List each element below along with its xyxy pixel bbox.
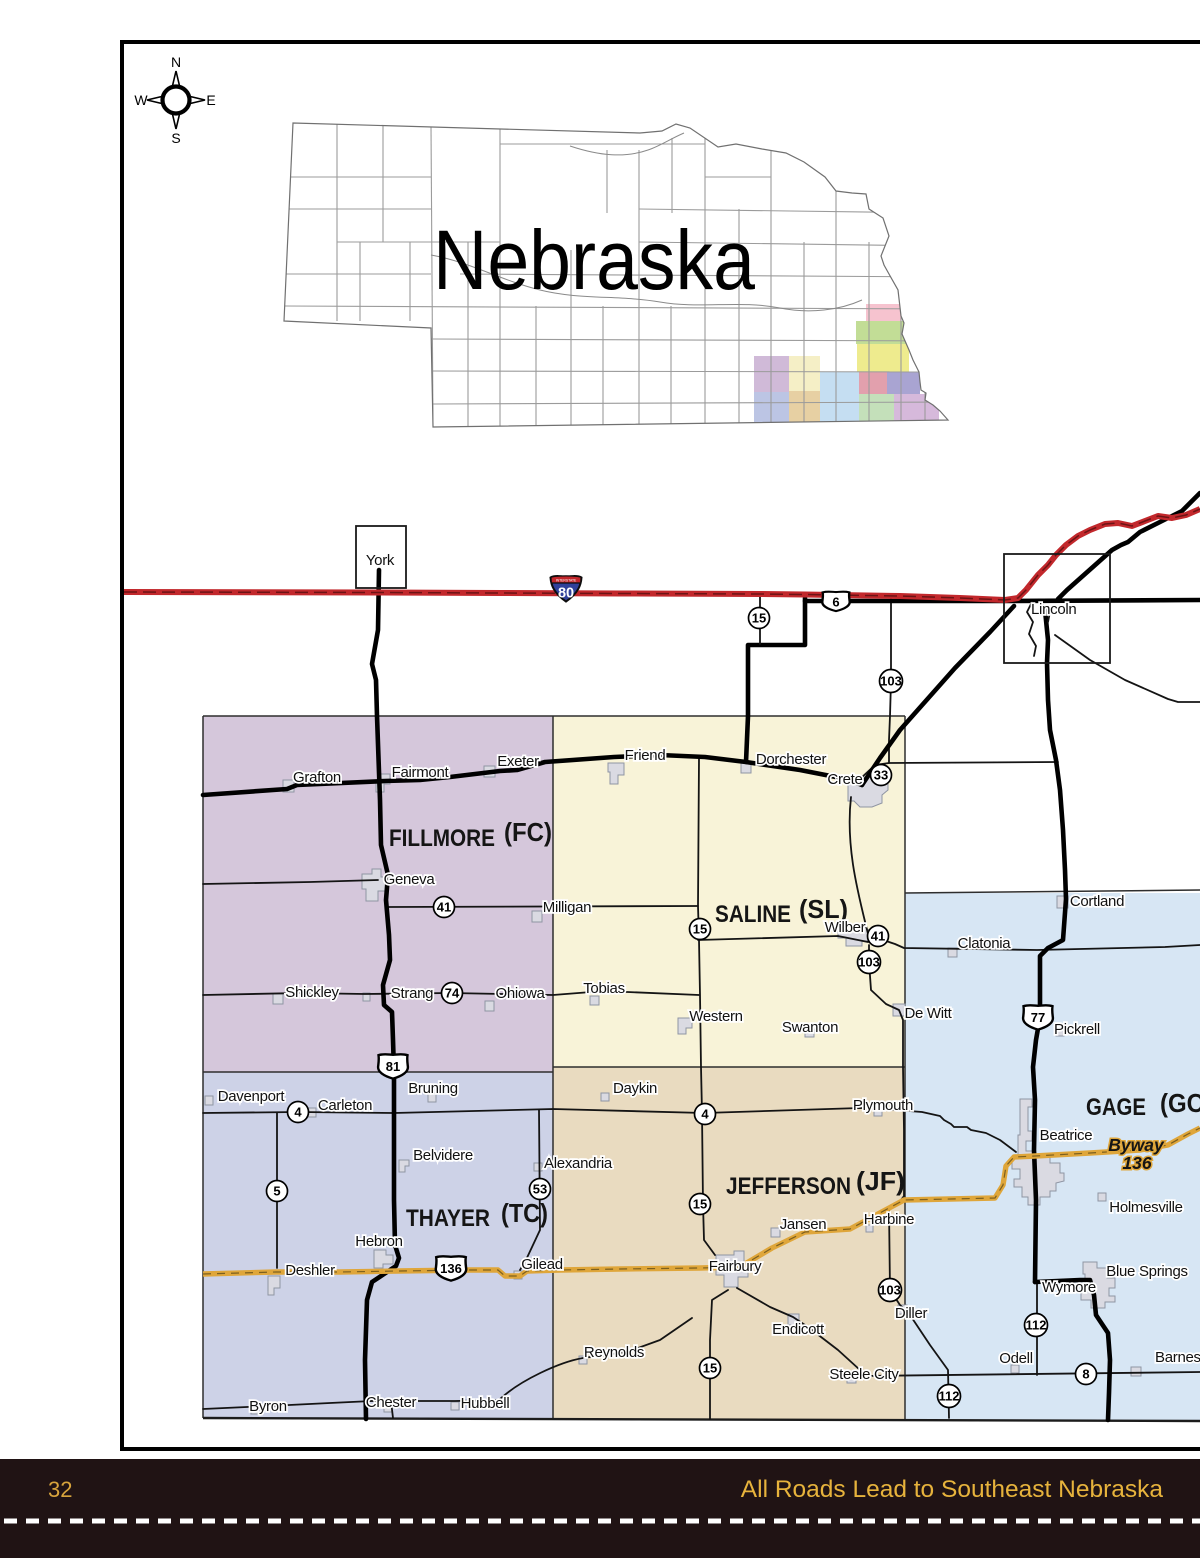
svg-text:SALINE: SALINE [715,901,791,928]
svg-text:Plymouth: Plymouth [853,1097,913,1114]
svg-text:Wilber: Wilber [825,919,866,936]
svg-text:Strang: Strang [391,985,433,1002]
svg-text:THAYER: THAYER [406,1205,490,1232]
svg-text:All Roads Lead to Southeast Ne: All Roads Lead to Southeast Nebraska [741,1476,1164,1503]
svg-text:103: 103 [858,955,880,970]
svg-text:136: 136 [1122,1153,1151,1173]
svg-text:Davenport: Davenport [218,1088,286,1105]
svg-text:15: 15 [693,1197,707,1212]
svg-text:(FC): (FC) [504,817,552,847]
svg-text:103: 103 [879,1283,901,1298]
svg-text:Shickley: Shickley [285,984,339,1001]
svg-text:Hebron: Hebron [355,1233,402,1250]
svg-text:Bruning: Bruning [408,1080,458,1097]
svg-text:Jansen: Jansen [780,1216,827,1233]
svg-text:Crete: Crete [827,771,862,788]
svg-text:Swanton: Swanton [782,1019,838,1036]
svg-text:Harbine: Harbine [864,1211,914,1228]
svg-text:Fairbury: Fairbury [709,1258,762,1275]
svg-text:Cortland: Cortland [1070,893,1124,910]
svg-text:Grafton: Grafton [293,769,341,786]
svg-text:Western: Western [689,1008,742,1025]
svg-text:FILLMORE: FILLMORE [389,825,495,852]
svg-text:Gilead: Gilead [521,1256,563,1273]
svg-text:Endicott: Endicott [772,1321,825,1338]
svg-text:Fairmont: Fairmont [392,764,450,781]
svg-text:Byron: Byron [249,1398,287,1415]
svg-text:Steele City: Steele City [829,1366,899,1383]
svg-text:Milligan: Milligan [543,899,591,916]
svg-text:Beatrice: Beatrice [1040,1127,1093,1144]
svg-text:Belvidere: Belvidere [413,1147,473,1164]
svg-text:Byway: Byway [1108,1135,1165,1155]
svg-text:5: 5 [273,1184,280,1199]
svg-text:Alexandria: Alexandria [544,1155,613,1172]
svg-text:De Witt: De Witt [904,1005,952,1022]
svg-text:(GC): (GC) [1160,1088,1200,1118]
svg-text:136: 136 [440,1261,462,1276]
svg-text:15: 15 [693,922,707,937]
svg-text:Wymore: Wymore [1042,1279,1096,1296]
svg-text:41: 41 [437,900,451,915]
svg-text:77: 77 [1031,1010,1045,1025]
svg-text:INTERSTATE: INTERSTATE [556,578,577,582]
svg-text:(JF): (JF) [856,1166,905,1196]
svg-text:(TC): (TC) [501,1198,548,1228]
svg-text:Lincoln: Lincoln [1031,601,1076,618]
svg-text:80: 80 [558,586,574,602]
svg-text:Hubbell: Hubbell [461,1395,510,1412]
svg-text:Odell: Odell [999,1350,1033,1367]
svg-text:Barneston: Barneston [1155,1349,1200,1366]
svg-text:Chester: Chester [366,1394,417,1411]
svg-text:York: York [366,552,395,569]
svg-text:32: 32 [48,1477,72,1502]
svg-text:Ohiowa: Ohiowa [495,985,545,1002]
svg-text:6: 6 [832,595,839,610]
svg-text:Carleton: Carleton [318,1097,372,1114]
svg-text:Clatonia: Clatonia [958,935,1012,952]
svg-text:112: 112 [1026,1318,1047,1333]
svg-text:E: E [206,92,215,108]
svg-text:Holmesville: Holmesville [1109,1199,1182,1216]
svg-text:S: S [171,130,180,146]
svg-text:Deshler: Deshler [285,1262,335,1279]
svg-text:15: 15 [752,611,766,626]
svg-text:Geneva: Geneva [384,871,436,888]
svg-text:N: N [171,54,181,70]
svg-text:4: 4 [294,1105,302,1120]
svg-text:Nebraska: Nebraska [433,213,755,307]
svg-text:Daykin: Daykin [613,1080,657,1097]
svg-text:4: 4 [701,1107,709,1122]
svg-text:33: 33 [874,768,888,783]
svg-text:103: 103 [880,674,902,689]
svg-text:Friend: Friend [625,747,666,764]
svg-text:Exeter: Exeter [497,753,539,770]
svg-text:Tobias: Tobias [583,980,625,997]
svg-text:15: 15 [703,1361,717,1376]
svg-text:Pickrell: Pickrell [1054,1021,1100,1038]
svg-text:Dorchester: Dorchester [756,751,827,768]
svg-text:53: 53 [533,1182,547,1197]
svg-text:JEFFERSON: JEFFERSON [726,1173,851,1200]
svg-text:81: 81 [386,1059,400,1074]
svg-text:74: 74 [445,986,460,1001]
svg-text:Reynolds: Reynolds [584,1344,644,1361]
svg-text:GAGE: GAGE [1086,1094,1146,1121]
svg-text:41: 41 [871,929,885,944]
svg-text:Diller: Diller [895,1305,928,1322]
svg-text:W: W [134,92,148,108]
svg-text:Blue Springs: Blue Springs [1106,1263,1187,1280]
svg-text:112: 112 [939,1389,960,1404]
svg-text:8: 8 [1082,1367,1089,1382]
